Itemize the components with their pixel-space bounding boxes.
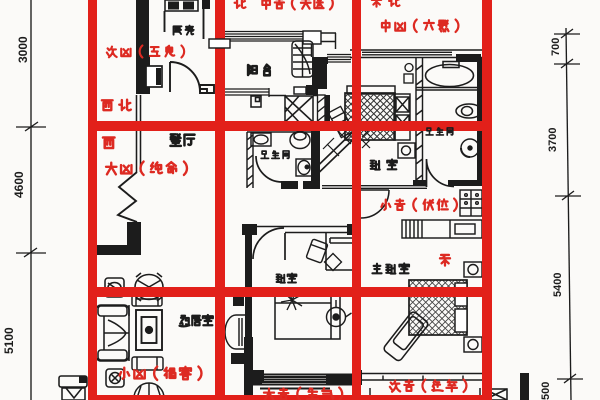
svg-text:5400: 5400 [552, 273, 564, 297]
svg-text:5100: 5100 [2, 327, 16, 354]
svg-text:3000: 3000 [16, 36, 30, 63]
svg-text:3700: 3700 [547, 128, 559, 152]
svg-text:500: 500 [540, 382, 552, 400]
svg-text:700: 700 [550, 38, 562, 56]
svg-text:4600: 4600 [12, 171, 26, 198]
